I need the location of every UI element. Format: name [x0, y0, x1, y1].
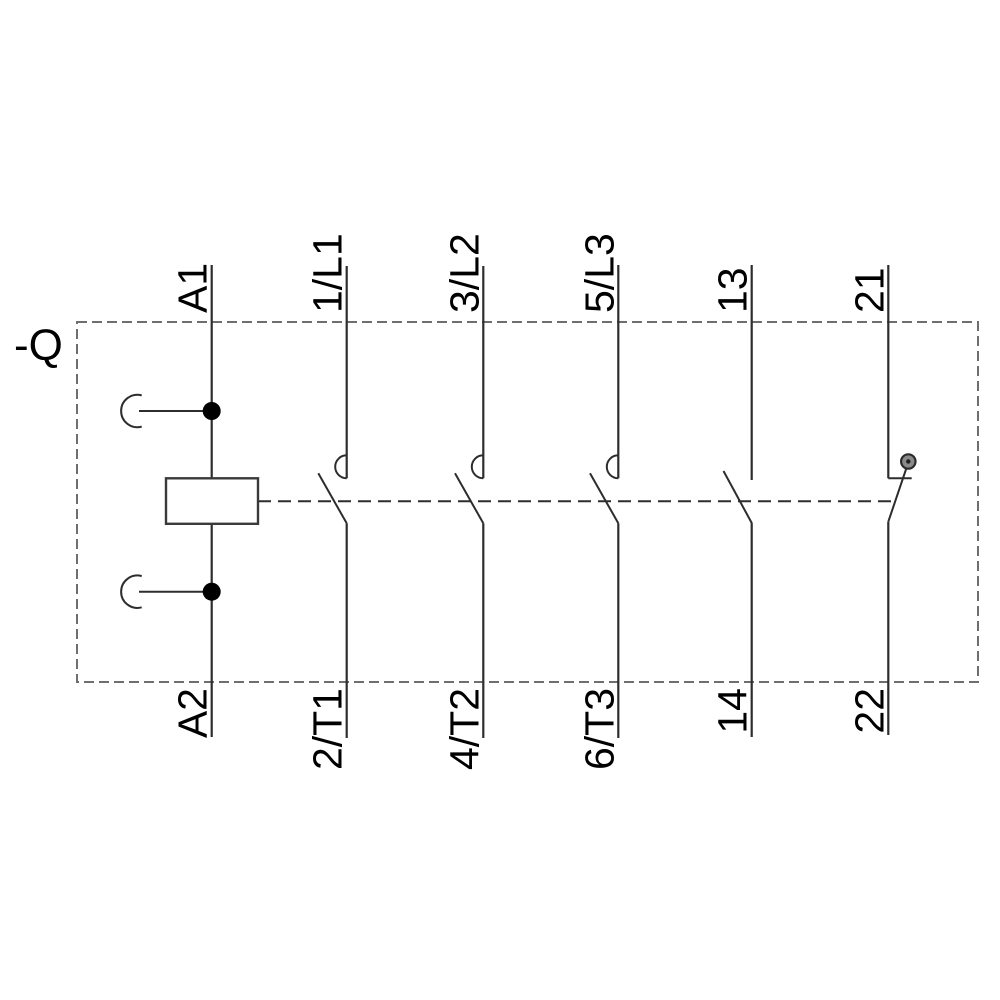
- terminal-label-21: 21: [846, 267, 892, 313]
- aux-nc-contact: 21 22: [846, 265, 915, 735]
- pole2-fixed-contact-arc: [472, 455, 484, 478]
- auxno-moving-contact-blade: [724, 471, 753, 524]
- terminal-label-3l2: 3/L2: [441, 233, 487, 313]
- auxnc-moving-contact-blade: [888, 467, 907, 522]
- schematic-page: -Q A1 A2 1/L1 2/T1: [0, 0, 1000, 1000]
- terminal-label-1l1: 1/L1: [305, 233, 351, 313]
- terminal-label-a1: A1: [170, 263, 216, 313]
- coil-terminal-socket-arc-top: [121, 395, 142, 427]
- pole1-fixed-contact-arc: [335, 455, 347, 478]
- junction-dot-a1: [203, 402, 221, 420]
- coil-symbol-rect: [166, 478, 258, 524]
- terminal-label-14: 14: [710, 688, 756, 734]
- terminal-label-a2: A2: [170, 688, 216, 738]
- terminal-label-2t1: 2/T1: [305, 688, 351, 770]
- pole3-moving-contact-blade: [590, 473, 618, 523]
- pole3-fixed-contact-arc: [607, 455, 619, 478]
- terminal-label-13: 13: [710, 267, 756, 313]
- device-designation-label: -Q: [14, 321, 63, 370]
- pole2-moving-contact-blade: [455, 473, 483, 523]
- terminal-label-4t2: 4/T2: [441, 688, 487, 770]
- pole1-moving-contact-blade: [318, 473, 346, 523]
- coil-terminal-socket-arc-bottom: [121, 576, 142, 608]
- coil-branch: A1 A2: [121, 263, 258, 738]
- terminal-label-6t3: 6/T3: [576, 688, 622, 770]
- terminal-label-22: 22: [846, 688, 892, 734]
- terminal-label-5l3: 5/L3: [576, 233, 622, 313]
- junction-dot-a2: [203, 583, 221, 601]
- auxnc-pivot-center-dot: [906, 459, 910, 463]
- contactor-schematic: -Q A1 A2 1/L1 2/T1: [0, 0, 1000, 1000]
